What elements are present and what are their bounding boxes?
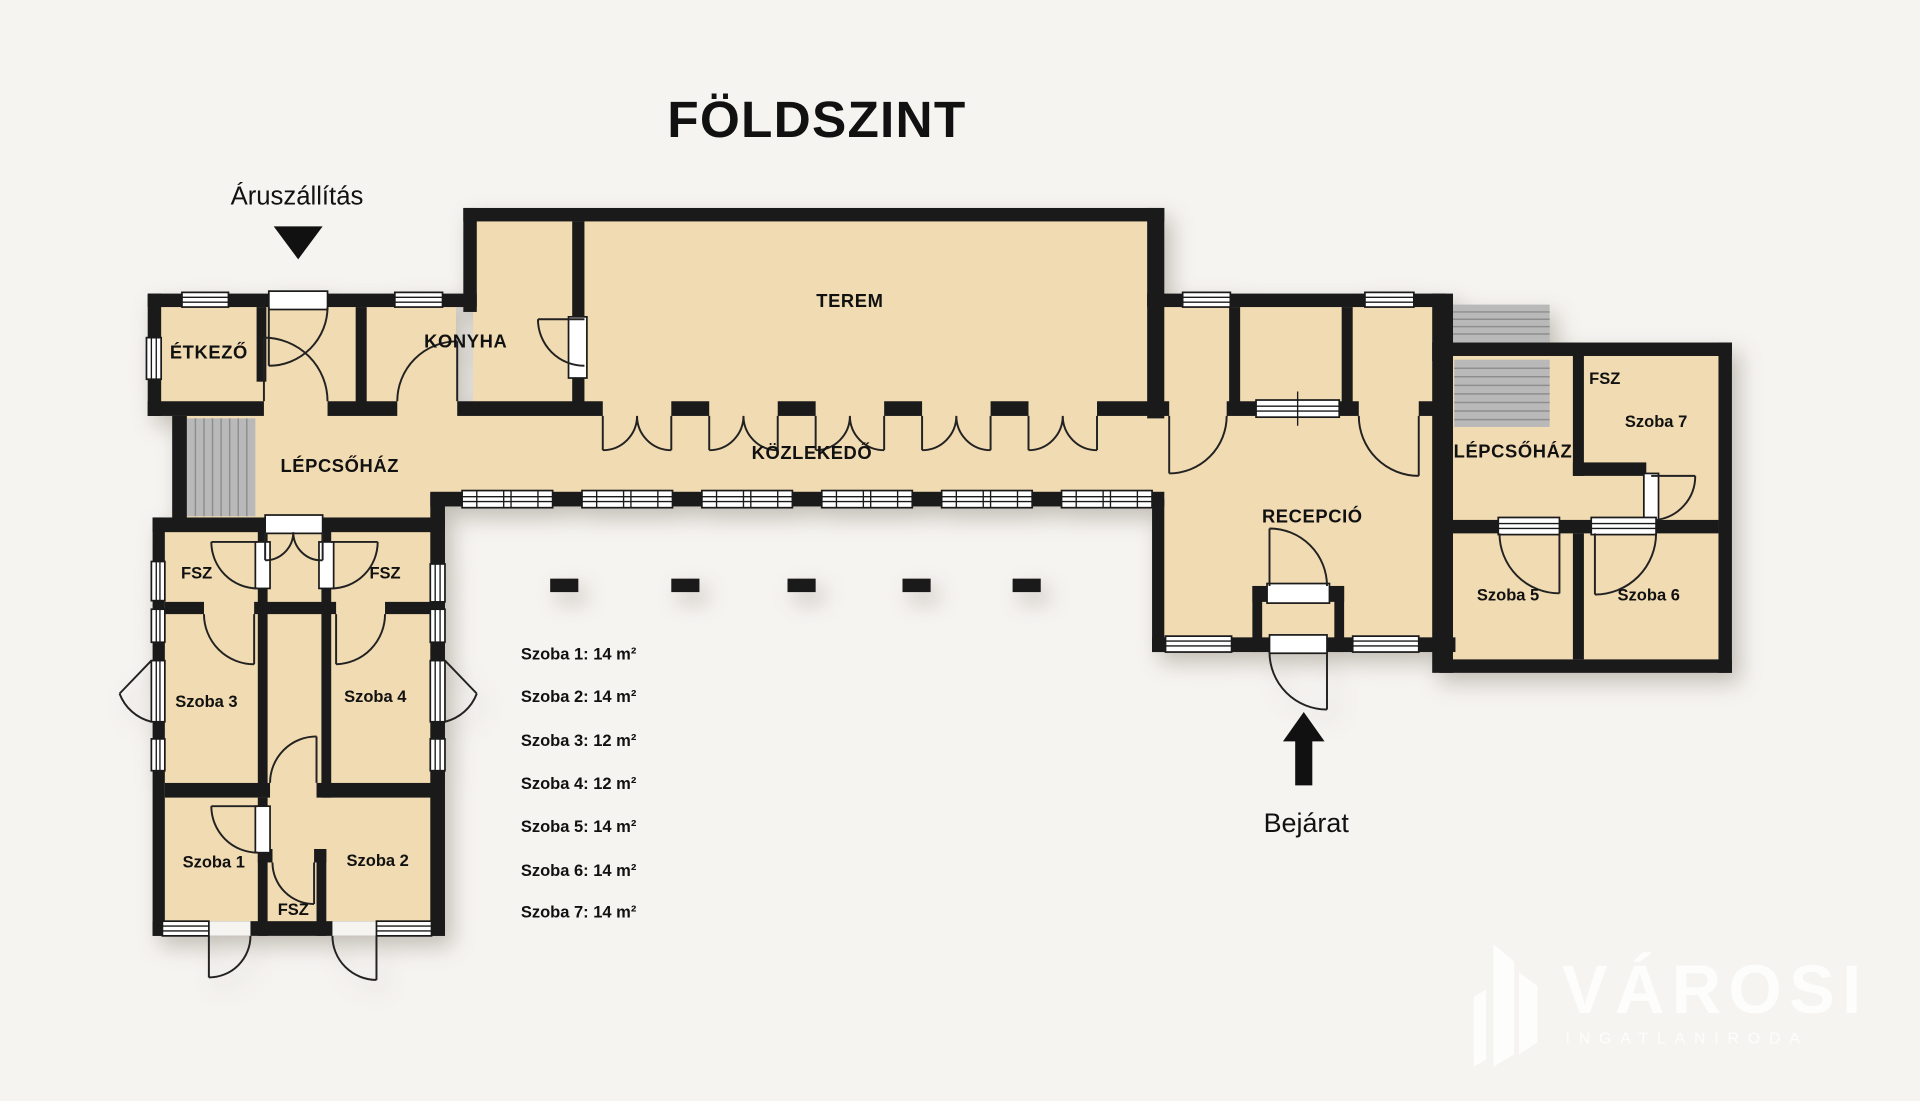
stairs-right-indoor-icon (1454, 360, 1549, 427)
room-label-szoba-6: Szoba 6 (1618, 587, 1680, 605)
stairs-left-icon (187, 418, 256, 516)
room-label-fsz-bottom: FSZ (278, 901, 309, 919)
room-label-fsz-right-wing: FSZ (1589, 370, 1620, 388)
building: ÉTKEZŐ KONYHA TEREM KÖZLEKEDŐ LÉPCSŐHÁZ … (120, 208, 1732, 980)
buildings-icon (1474, 944, 1538, 1066)
stairs-right-outdoor-icon (1453, 305, 1550, 344)
page-title: FÖLDSZINT (667, 90, 966, 148)
room-label-kozlekedo: KÖZLEKEDŐ (752, 442, 873, 463)
delivery-label: Áruszállítás (231, 181, 364, 210)
room-label-lepcsohaz-left: LÉPCSŐHÁZ (280, 455, 399, 476)
entrance-annotation: Bejárat (1264, 712, 1350, 838)
logo-name: VÁROSI (1562, 951, 1869, 1028)
delivery-arrow-icon (274, 226, 323, 259)
room-label-terem: TEREM (816, 290, 883, 311)
room-label-recepcio: RECEPCIÓ (1262, 505, 1363, 526)
legend-item: Szoba 6: 14 m² (521, 862, 637, 880)
room-label-szoba-5: Szoba 5 (1477, 587, 1539, 605)
room-label-szoba-3: Szoba 3 (175, 693, 237, 711)
logo-subtitle: INGATLANIRODA (1566, 1031, 1809, 1048)
agency-logo: VÁROSI INGATLANIRODA (1474, 944, 1869, 1066)
entrance-arrow-icon (1283, 712, 1325, 785)
room-label-fsz-left: FSZ (181, 565, 212, 583)
room-label-fsz-right: FSZ (369, 565, 400, 583)
floor-plan: FÖLDSZINT Áruszállítás (0, 0, 1920, 1101)
entrance-label: Bejárat (1264, 808, 1350, 838)
legend-item: Szoba 1: 14 m² (521, 645, 637, 663)
legend: Szoba 1: 14 m² Szoba 2: 14 m² Szoba 3: 1… (521, 645, 637, 921)
legend-item: Szoba 4: 12 m² (521, 775, 637, 793)
legend-item: Szoba 7: 14 m² (521, 904, 637, 922)
legend-item: Szoba 5: 14 m² (521, 818, 637, 836)
room-label-szoba-4: Szoba 4 (344, 688, 407, 706)
delivery-annotation: Áruszállítás (231, 181, 364, 259)
room-label-szoba-7: Szoba 7 (1625, 413, 1687, 431)
legend-item: Szoba 3: 12 m² (521, 732, 637, 750)
legend-item: Szoba 2: 14 m² (521, 688, 637, 706)
room-label-etkezo: ÉTKEZŐ (170, 341, 248, 362)
room-label-szoba-1: Szoba 1 (183, 853, 245, 871)
room-label-lepcsohaz-right: LÉPCSŐHÁZ (1454, 441, 1573, 462)
room-label-konyha: KONYHA (424, 330, 507, 351)
porch-columns (550, 579, 1041, 592)
room-label-szoba-2: Szoba 2 (347, 852, 409, 870)
